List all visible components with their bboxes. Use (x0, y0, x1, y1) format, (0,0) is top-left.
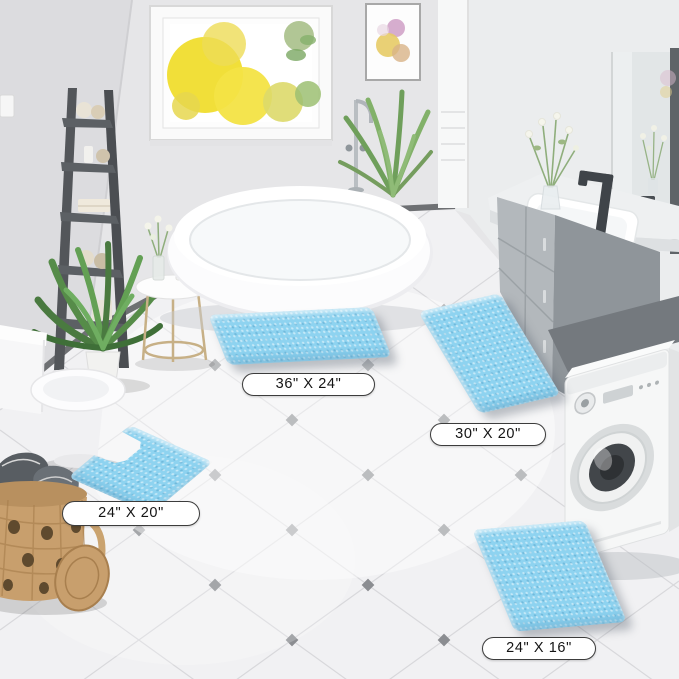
wall-art-frame (366, 4, 420, 80)
size-label-30x20: 30" X 20" (430, 423, 546, 446)
shelf-tower (438, 0, 468, 208)
size-label-text: 24" X 16" (506, 641, 572, 656)
rug-36x24 (208, 307, 392, 365)
bathroom-scene: 36" X 24" 30" X 20" 24" X 20" 24" X 16" (0, 0, 679, 679)
size-label-24x16: 24" X 16" (482, 637, 596, 660)
size-label-text: 36" X 24" (276, 377, 342, 392)
window-sill-shadow (150, 140, 332, 146)
size-label-36x24: 36" X 24" (242, 373, 375, 396)
window (150, 6, 332, 146)
size-label-24x20: 24" X 20" (62, 501, 200, 526)
wall-switch (0, 95, 14, 117)
washer-side (669, 348, 679, 532)
size-label-text: 30" X 20" (455, 427, 521, 442)
size-label-text: 24" X 20" (98, 506, 164, 521)
